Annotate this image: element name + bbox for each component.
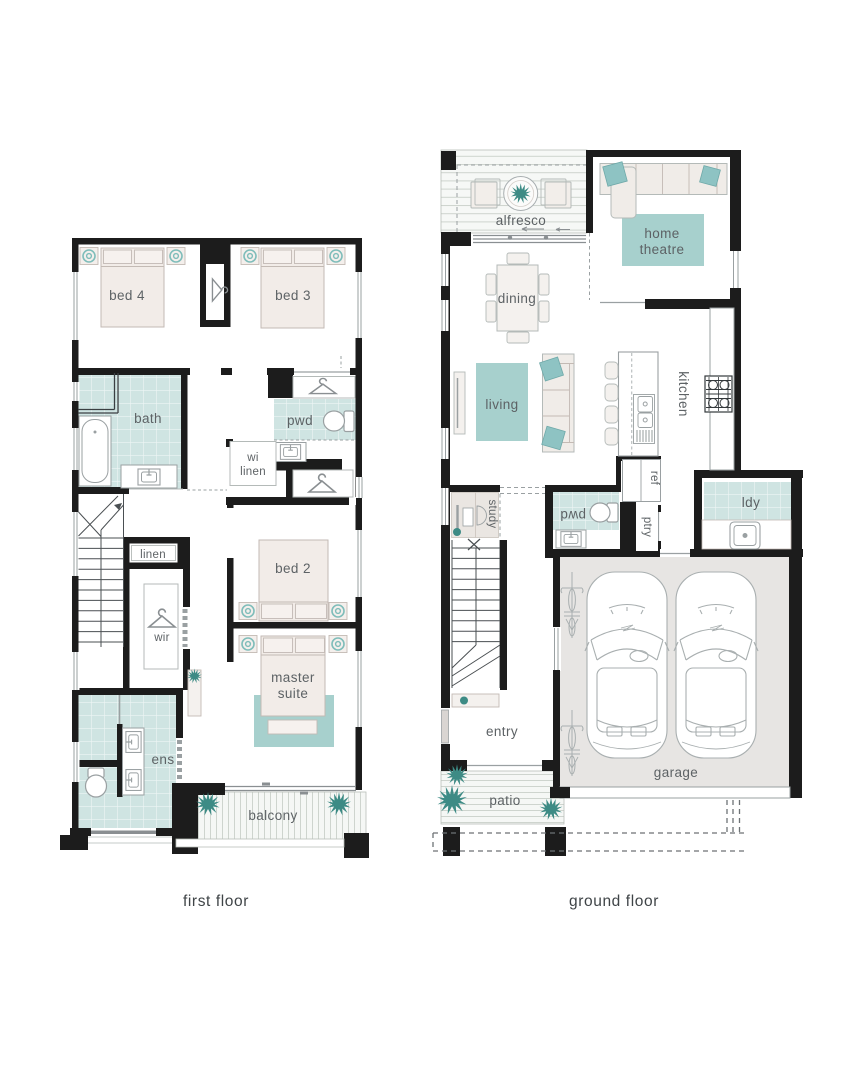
svg-text:first floor: first floor	[183, 893, 249, 910]
svg-text:entry: entry	[486, 724, 518, 739]
svg-text:dining: dining	[498, 291, 536, 306]
svg-text:kitchen: kitchen	[676, 371, 691, 417]
svg-text:ref: ref	[648, 471, 660, 486]
svg-text:patio: patio	[489, 793, 520, 808]
svg-text:bed 3: bed 3	[275, 288, 311, 303]
svg-text:theatre: theatre	[640, 242, 685, 257]
svg-text:pwd: pwd	[560, 508, 586, 523]
svg-text:living: living	[485, 397, 518, 412]
svg-text:bath: bath	[134, 411, 162, 426]
svg-text:ground floor: ground floor	[569, 893, 659, 910]
svg-text:pwd: pwd	[287, 413, 313, 428]
svg-text:alfresco: alfresco	[496, 213, 546, 228]
svg-text:bed 2: bed 2	[275, 561, 311, 576]
svg-text:master: master	[271, 670, 315, 685]
svg-text:ptry: ptry	[641, 517, 653, 537]
svg-text:ens: ens	[152, 752, 175, 767]
svg-text:wi: wi	[246, 452, 258, 464]
svg-text:linen: linen	[140, 549, 166, 561]
svg-text:garage: garage	[654, 765, 698, 780]
svg-text:balcony: balcony	[248, 808, 297, 823]
svg-text:study: study	[486, 500, 498, 529]
svg-text:home: home	[644, 226, 679, 241]
svg-text:linen: linen	[240, 466, 266, 478]
svg-text:suite: suite	[278, 686, 309, 701]
svg-text:wir: wir	[153, 632, 170, 644]
svg-text:bed 4: bed 4	[109, 288, 145, 303]
svg-text:ldy: ldy	[742, 495, 760, 510]
